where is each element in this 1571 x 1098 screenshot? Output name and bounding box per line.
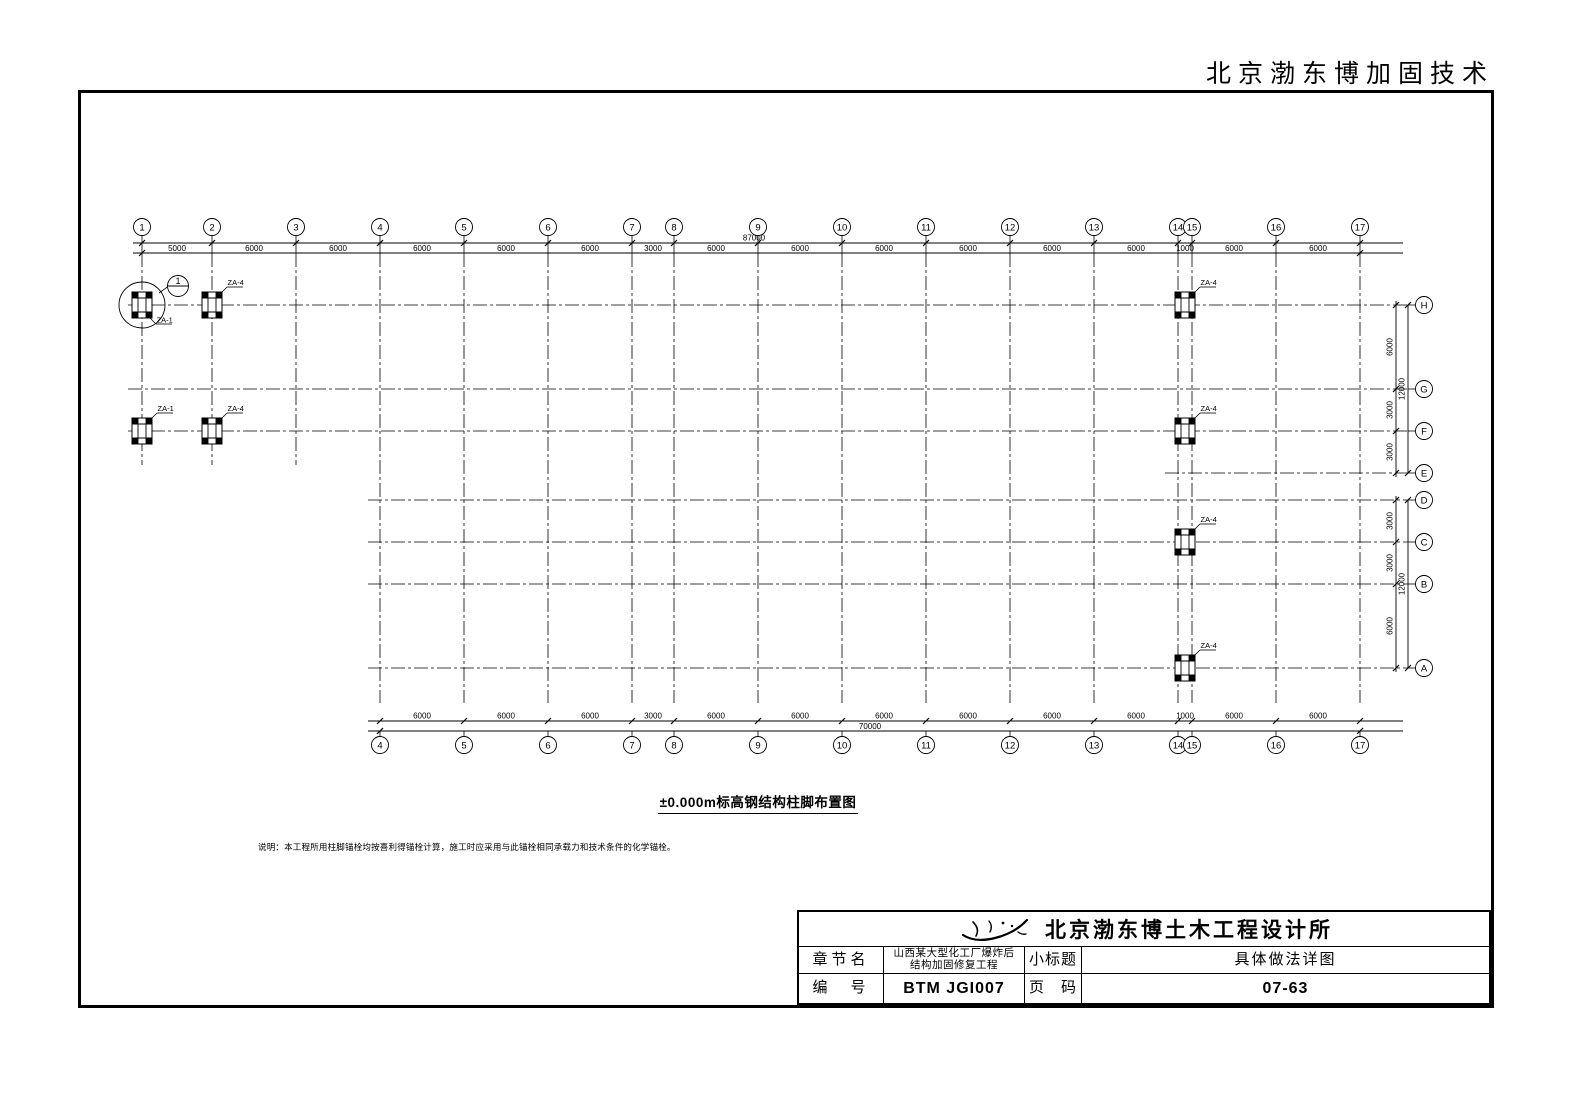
svg-text:6000: 6000 [1127,712,1145,721]
svg-text:6000: 6000 [959,244,977,253]
svg-text:ZA-4: ZA-4 [1201,404,1217,413]
column-symbol-ZA-4: ZA-4 [1175,641,1217,681]
svg-text:6000: 6000 [1043,712,1061,721]
svg-text:14: 14 [1173,222,1184,233]
project-name: 山西某大型化工厂爆炸后 结构加固修复工程 [884,947,1025,973]
svg-text:5000: 5000 [168,244,186,253]
title-block: 北京渤东博土木工程设计所 章节名 山西某大型化工厂爆炸后 结构加固修复工程 小标… [797,910,1491,1005]
svg-text:6000: 6000 [707,244,725,253]
svg-text:6000: 6000 [1043,244,1061,253]
drawing-title-text: ±0.000m标高钢结构柱脚布置图 [658,791,859,814]
svg-text:8: 8 [671,222,676,233]
company-logo-icon [955,914,1033,944]
svg-text:8: 8 [671,740,676,751]
subtitle-value: 具体做法详图 [1082,947,1489,973]
svg-text:6000: 6000 [959,712,977,721]
svg-text:13: 13 [1089,222,1100,233]
svg-text:E: E [1421,468,1427,479]
svg-text:6: 6 [545,222,550,233]
svg-text:7: 7 [629,740,634,751]
svg-text:B: B [1421,579,1427,590]
svg-text:17: 17 [1355,222,1366,233]
column-symbol-ZA-1: ZA-1 [132,404,174,444]
svg-text:5: 5 [461,222,466,233]
svg-text:4: 4 [377,740,382,751]
svg-text:1000: 1000 [1176,712,1194,721]
svg-text:ZA-4: ZA-4 [1201,641,1217,650]
svg-text:C: C [1421,537,1428,548]
svg-text:A: A [1421,663,1428,674]
column-symbol-ZA-4: ZA-4 [1175,278,1217,318]
company-name: 北京渤东博土木工程设计所 [1045,914,1333,944]
svg-text:ZA-4: ZA-4 [1201,278,1217,287]
project-name-line1: 山西某大型化工厂爆炸后 [894,948,1015,960]
grid-lines [128,253,1408,703]
svg-text:F: F [1421,426,1427,437]
svg-text:D: D [1421,495,1428,506]
bottom-grid-axis: 6000600060003000600060006000600060006000… [368,712,1403,754]
svg-text:6000: 6000 [1225,244,1243,253]
page: 北京渤东博加固技术 500060006000600060006000300060… [0,0,1571,1098]
svg-text:6000: 6000 [413,244,431,253]
svg-text:3000: 3000 [1386,512,1395,530]
svg-text:3000: 3000 [1386,443,1395,461]
svg-text:6000: 6000 [497,712,515,721]
svg-text:6000: 6000 [1386,338,1395,356]
number-label: 编 号 [799,974,884,1003]
title-block-company-row: 北京渤东博土木工程设计所 [799,912,1489,947]
svg-text:3000: 3000 [1386,554,1395,572]
title-block-row-chapter: 章节名 山西某大型化工厂爆炸后 结构加固修复工程 小标题 具体做法详图 [799,947,1489,974]
svg-text:12000: 12000 [1398,377,1407,400]
svg-text:5: 5 [461,740,466,751]
svg-text:6000: 6000 [1127,244,1145,253]
svg-text:6000: 6000 [581,244,599,253]
svg-text:6000: 6000 [707,712,725,721]
svg-text:6000: 6000 [875,712,893,721]
svg-text:15: 15 [1187,222,1198,233]
svg-text:7: 7 [629,222,634,233]
column-symbol-ZA-4: ZA-4 [202,278,244,318]
detail-callout: 1 [159,276,189,297]
svg-text:ZA-4: ZA-4 [228,404,244,413]
svg-text:4: 4 [377,222,382,233]
drawing-note: 说明：本工程所用柱脚锚栓均按喜利得锚栓计算，施工时应采用与此锚栓相同承载力和技术… [258,841,676,853]
page-label: 页 码 [1025,974,1082,1003]
svg-text:ZA-4: ZA-4 [1201,515,1217,524]
subtitle-label: 小标题 [1025,947,1082,973]
column-symbols: ZA-1ZA-4ZA-1ZA-4ZA-4ZA-4ZA-4ZA-4 [119,278,1217,681]
svg-text:17: 17 [1355,740,1366,751]
svg-text:1: 1 [175,276,180,286]
svg-text:10: 10 [837,740,848,751]
svg-text:2: 2 [209,222,214,233]
svg-text:3: 3 [293,222,298,233]
svg-text:6000: 6000 [413,712,431,721]
svg-text:6000: 6000 [245,244,263,253]
top-grid-axis: 5000600060006000600060003000600060006000… [133,219,1403,257]
page-value: 07-63 [1082,974,1489,1003]
svg-text:3000: 3000 [1386,401,1395,419]
project-name-line2: 结构加固修复工程 [910,960,998,972]
svg-text:6000: 6000 [875,244,893,253]
svg-text:6000: 6000 [1225,712,1243,721]
svg-text:6000: 6000 [791,712,809,721]
drawing-title: ±0.000m标高钢结构柱脚布置图 [600,791,916,814]
column-symbol-ZA-4: ZA-4 [1175,515,1217,555]
svg-text:11: 11 [921,222,931,233]
svg-text:11: 11 [921,740,931,751]
svg-text:ZA-1: ZA-1 [157,316,173,325]
svg-text:1: 1 [139,222,144,233]
svg-text:16: 16 [1271,740,1282,751]
svg-text:3000: 3000 [644,712,662,721]
svg-text:6: 6 [545,740,550,751]
svg-text:14: 14 [1173,740,1184,751]
page-value-text: 07-63 [1263,980,1309,998]
svg-text:9: 9 [755,740,760,751]
svg-text:16: 16 [1271,222,1282,233]
svg-text:6000: 6000 [1309,712,1327,721]
svg-text:15: 15 [1187,740,1198,751]
column-symbol-ZA-4: ZA-4 [1175,404,1217,444]
svg-text:70000: 70000 [859,722,882,731]
number-value-text: BTM JGI007 [903,980,1005,998]
row-grid-axis: 6000300030001200030003000600012000HGFEDC… [1386,297,1433,677]
svg-text:13: 13 [1089,740,1100,751]
svg-text:10: 10 [837,222,848,233]
column-symbol-ZA-4: ZA-4 [202,404,244,444]
svg-text:ZA-1: ZA-1 [158,404,174,413]
svg-text:6000: 6000 [1309,244,1327,253]
svg-text:6000: 6000 [791,244,809,253]
svg-text:G: G [1420,384,1427,395]
title-block-row-number: 编 号 BTM JGI007 页 码 07-63 [799,974,1489,1003]
svg-text:H: H [1421,300,1428,311]
svg-text:ZA-4: ZA-4 [228,278,244,287]
chapter-label: 章节名 [799,947,884,973]
svg-text:12: 12 [1005,740,1016,751]
svg-text:6000: 6000 [329,244,347,253]
svg-text:6000: 6000 [1386,617,1395,635]
svg-text:12: 12 [1005,222,1016,233]
svg-text:9: 9 [755,222,760,233]
svg-text:6000: 6000 [497,244,515,253]
svg-text:3000: 3000 [644,244,662,253]
svg-text:6000: 6000 [581,712,599,721]
number-value: BTM JGI007 [884,974,1025,1003]
svg-text:12000: 12000 [1398,572,1407,595]
